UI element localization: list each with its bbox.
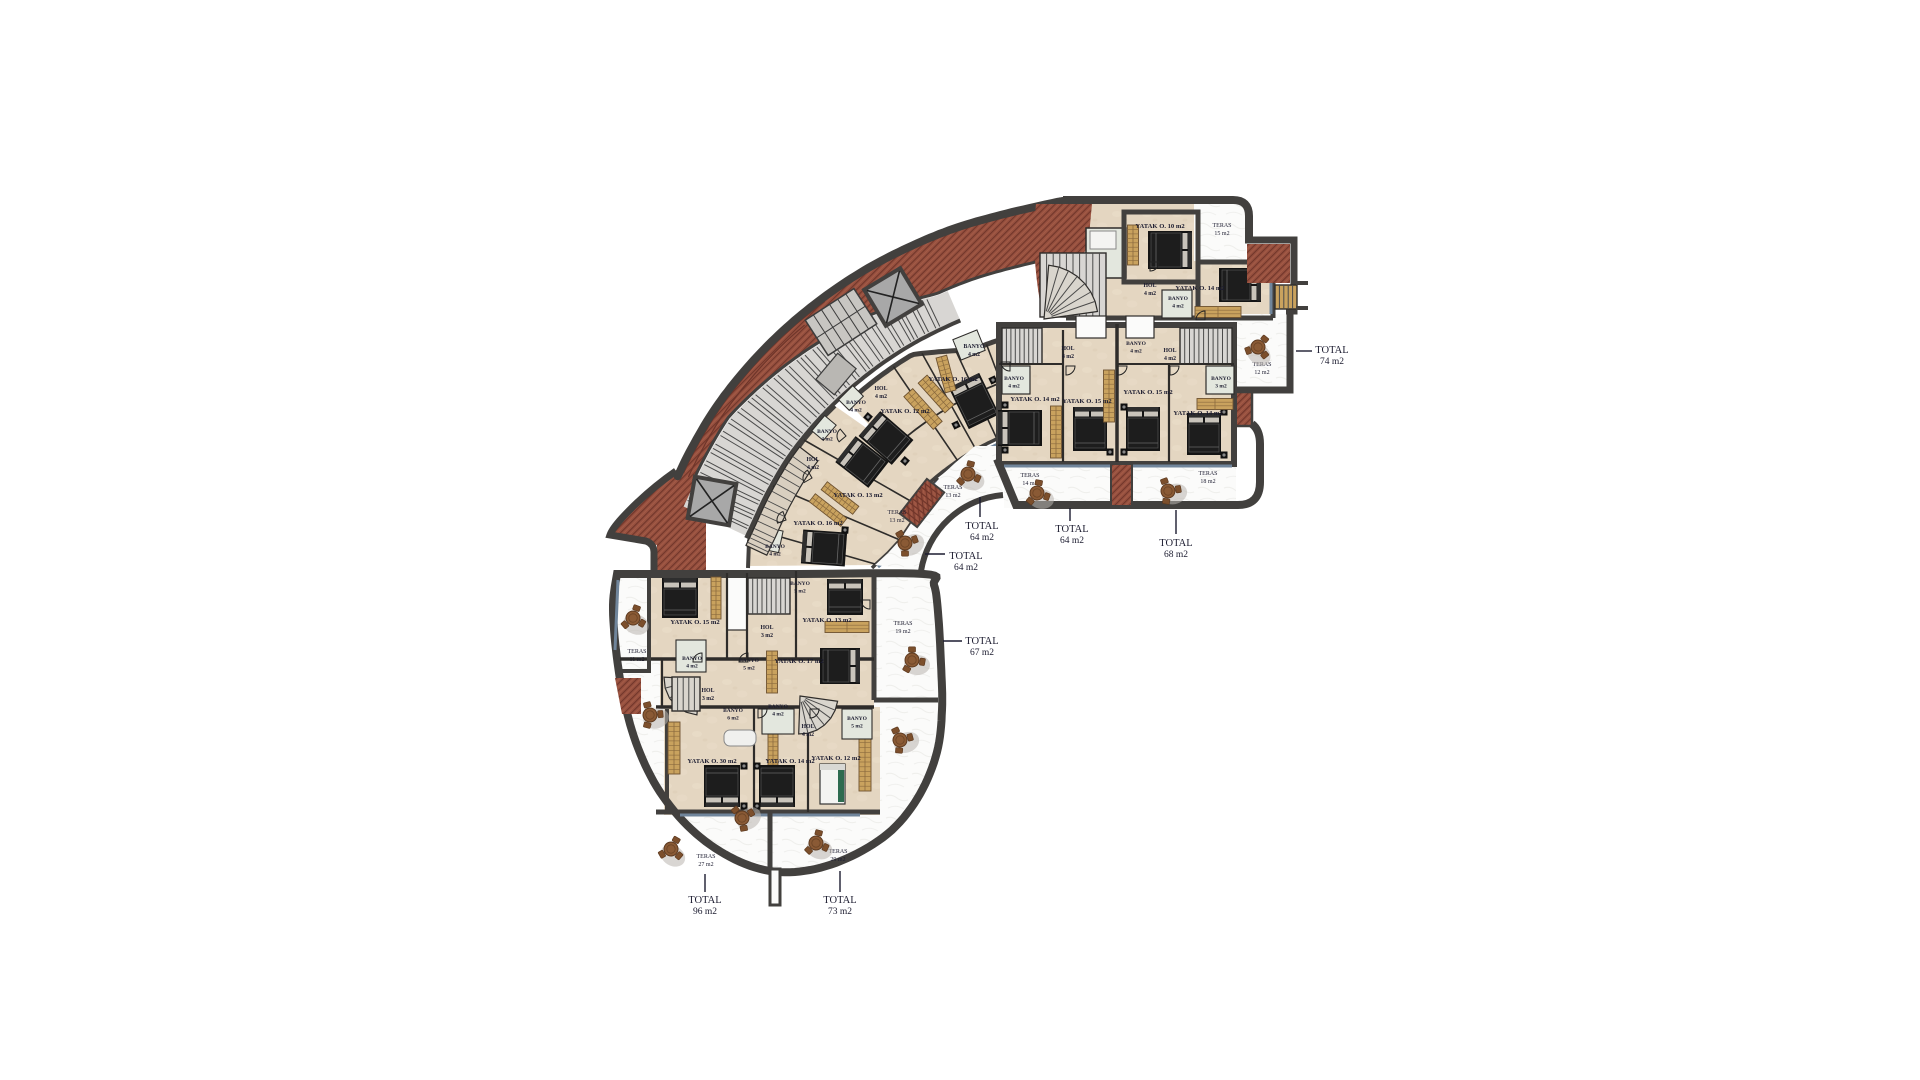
svg-text:YATAK O. 14 m2: YATAK O. 14 m2 — [1173, 410, 1223, 417]
svg-text:TERAS: TERAS — [1212, 223, 1231, 229]
svg-text:3 m2: 3 m2 — [1215, 384, 1227, 390]
svg-text:TOTAL: TOTAL — [1055, 524, 1088, 535]
svg-text:YATAK O. 14 m2: YATAK O. 14 m2 — [1010, 396, 1060, 403]
svg-text:YATAK O. 15 m2: YATAK O. 15 m2 — [670, 619, 720, 626]
svg-text:HOL: HOL — [702, 688, 715, 694]
svg-text:4 m2: 4 m2 — [875, 394, 887, 400]
svg-text:4 m2: 4 m2 — [1130, 349, 1142, 355]
svg-text:67 m2: 67 m2 — [970, 648, 994, 658]
svg-text:3 m2: 3 m2 — [761, 633, 773, 639]
svg-text:5 m2: 5 m2 — [794, 589, 806, 595]
svg-text:4 m2: 4 m2 — [802, 732, 814, 738]
svg-text:YATAK O. 30 m2: YATAK O. 30 m2 — [687, 758, 737, 765]
svg-text:HOL: HOL — [1062, 346, 1075, 352]
svg-text:BANYO: BANYO — [1168, 296, 1189, 302]
svg-text:BANYO: BANYO — [1126, 341, 1147, 347]
svg-text:BANYO: BANYO — [739, 658, 760, 664]
svg-text:TOTAL: TOTAL — [949, 551, 982, 562]
svg-text:YATAK O. 13 m2: YATAK O. 13 m2 — [802, 617, 852, 624]
svg-text:TERAS: TERAS — [1198, 471, 1217, 477]
svg-text:YATAK O. 15 m2: YATAK O. 15 m2 — [1123, 389, 1173, 396]
svg-text:73 m2: 73 m2 — [828, 907, 852, 917]
svg-text:YATAK O. 16 m2: YATAK O. 16 m2 — [793, 520, 843, 527]
svg-text:4 m2: 4 m2 — [1164, 356, 1176, 362]
svg-text:BANYO: BANYO — [790, 581, 811, 587]
svg-text:4 m2: 4 m2 — [850, 408, 862, 414]
svg-text:BANYO: BANYO — [817, 429, 838, 435]
svg-text:5 m2: 5 m2 — [851, 724, 863, 730]
svg-text:YATAK O. 15 m2: YATAK O. 15 m2 — [1062, 398, 1112, 405]
svg-text:27 m2: 27 m2 — [698, 862, 713, 868]
svg-text:29 m2: 29 m2 — [830, 857, 845, 863]
svg-text:BANYO: BANYO — [847, 716, 868, 722]
svg-text:HOL: HOL — [761, 625, 774, 631]
svg-text:64 m2: 64 m2 — [954, 563, 978, 573]
svg-text:BANYO: BANYO — [846, 400, 867, 406]
svg-text:74 m2: 74 m2 — [1320, 357, 1344, 367]
svg-text:11 m2: 11 m2 — [630, 657, 645, 663]
svg-text:BANYO: BANYO — [723, 708, 744, 714]
svg-text:BANYO: BANYO — [964, 344, 985, 350]
svg-text:TERAS: TERAS — [627, 649, 646, 655]
svg-text:4 m2: 4 m2 — [807, 465, 819, 471]
svg-text:4 m2: 4 m2 — [1062, 354, 1074, 360]
svg-text:TOTAL: TOTAL — [1315, 345, 1348, 356]
svg-text:TOTAL: TOTAL — [965, 521, 998, 532]
svg-text:96 m2: 96 m2 — [693, 907, 717, 917]
svg-text:64 m2: 64 m2 — [1060, 536, 1084, 546]
svg-text:HOL: HOL — [875, 386, 888, 392]
svg-text:TERAS: TERAS — [893, 621, 912, 627]
svg-text:4 m2: 4 m2 — [686, 664, 698, 670]
svg-text:4 m2: 4 m2 — [1144, 291, 1156, 297]
svg-text:HOL: HOL — [1144, 283, 1157, 289]
svg-text:TOTAL: TOTAL — [965, 636, 998, 647]
svg-text:TERAS: TERAS — [887, 510, 906, 516]
svg-text:TOTAL: TOTAL — [823, 895, 856, 906]
svg-text:TOTAL: TOTAL — [688, 895, 721, 906]
svg-text:4 m2: 4 m2 — [968, 352, 980, 358]
svg-text:TERAS: TERAS — [943, 485, 962, 491]
svg-text:HOL: HOL — [802, 724, 815, 730]
svg-text:YATAK O. 16 m2: YATAK O. 16 m2 — [928, 376, 978, 383]
svg-text:TERAS: TERAS — [1020, 473, 1039, 479]
svg-text:YATAK O. 10 m2: YATAK O. 10 m2 — [1135, 223, 1185, 230]
svg-text:HOL: HOL — [807, 457, 820, 463]
svg-text:5 m2: 5 m2 — [743, 666, 755, 672]
svg-text:4 m2: 4 m2 — [1008, 384, 1020, 390]
svg-text:68 m2: 68 m2 — [1164, 550, 1188, 560]
svg-text:YATAK O. 12 m2: YATAK O. 12 m2 — [811, 755, 861, 762]
svg-text:19 m2: 19 m2 — [895, 629, 910, 635]
svg-text:18 m2: 18 m2 — [1200, 479, 1215, 485]
svg-text:TOTAL: TOTAL — [1159, 538, 1192, 549]
svg-text:BANYO: BANYO — [1211, 376, 1232, 382]
svg-text:YATAK O. 12 m2: YATAK O. 12 m2 — [880, 408, 930, 415]
svg-text:4 m2: 4 m2 — [772, 712, 784, 718]
svg-text:13 m2: 13 m2 — [889, 518, 904, 524]
svg-text:YATAK O. 17 m2: YATAK O. 17 m2 — [774, 658, 824, 665]
svg-text:6 m2: 6 m2 — [727, 716, 739, 722]
svg-text:BANYO: BANYO — [768, 704, 789, 710]
svg-text:YATAK O. 14 m2: YATAK O. 14 m2 — [765, 758, 815, 765]
svg-text:4 m2: 4 m2 — [769, 552, 781, 558]
svg-text:64 m2: 64 m2 — [970, 533, 994, 543]
svg-text:YATAK O. 13 m2: YATAK O. 13 m2 — [833, 492, 883, 499]
svg-text:3 m2: 3 m2 — [702, 696, 714, 702]
svg-text:BANYO: BANYO — [1004, 376, 1025, 382]
svg-text:HOL: HOL — [1164, 348, 1177, 354]
svg-text:12 m2: 12 m2 — [1254, 370, 1269, 376]
svg-text:BANYO: BANYO — [682, 656, 703, 662]
svg-text:TERAS: TERAS — [696, 854, 715, 860]
svg-text:BANYO: BANYO — [765, 544, 786, 550]
svg-text:15 m2: 15 m2 — [1214, 231, 1229, 237]
svg-text:13 m2: 13 m2 — [945, 493, 960, 499]
svg-text:4 m2: 4 m2 — [821, 437, 833, 443]
svg-text:4 m2: 4 m2 — [1172, 304, 1184, 310]
